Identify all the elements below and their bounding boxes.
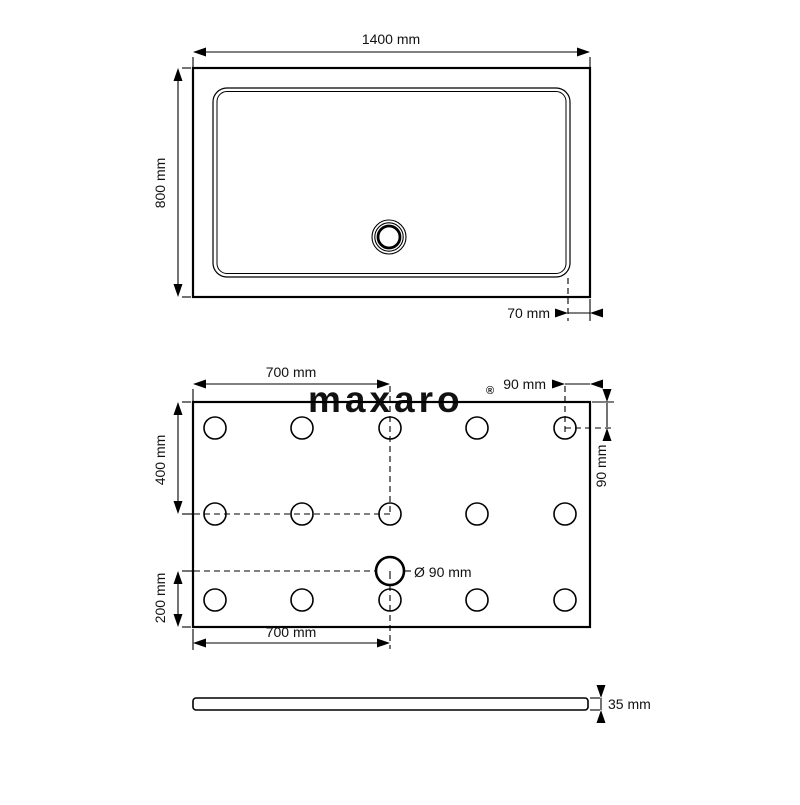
drain-top-view <box>372 220 406 254</box>
arrow-right-icon <box>555 309 568 318</box>
arrow-right-icon <box>552 380 565 389</box>
top-view-height-label: 800 mm <box>152 158 168 209</box>
arrow-down-icon <box>174 284 183 297</box>
arrow-down-icon <box>603 389 612 402</box>
foot-circle <box>466 503 488 525</box>
bottom-view-left-lower-label: 200 mm <box>152 573 168 624</box>
arrow-left-icon <box>590 380 603 389</box>
arrow-down-icon <box>174 501 183 514</box>
side-view-thickness-label: 35 mm <box>608 696 651 712</box>
arrow-up-icon <box>597 710 606 723</box>
watermark-registered-icon: ® <box>486 385 494 397</box>
bottom-view-bottom-span-label: 700 mm <box>266 624 317 640</box>
foot-circle <box>466 589 488 611</box>
top-view-outer-edge <box>193 68 590 297</box>
shower-tray-drawing: maxaro ® <box>0 0 800 800</box>
side-view <box>193 685 606 723</box>
arrow-left-icon <box>590 309 603 318</box>
arrow-down-icon <box>174 614 183 627</box>
arrow-right-icon <box>577 48 590 57</box>
dim-width-1400 <box>193 48 590 68</box>
foot-circle <box>466 417 488 439</box>
top-view-rim-label: 70 mm <box>507 305 550 321</box>
arrow-down-icon <box>597 685 606 698</box>
foot-circle <box>554 503 576 525</box>
arrow-up-icon <box>174 571 183 584</box>
drain-diameter-label: Ø 90 mm <box>414 564 472 580</box>
arrow-up-icon <box>174 68 183 81</box>
arrow-left-icon <box>193 48 206 57</box>
foot-circle <box>291 417 313 439</box>
top-view-width-label: 1400 mm <box>362 31 420 47</box>
dim-rim-70 <box>555 278 603 321</box>
dim-thickness-35 <box>590 685 606 723</box>
dim-height-800 <box>174 68 192 297</box>
foot-circle <box>204 417 226 439</box>
top-view <box>174 48 604 322</box>
foot-circle <box>291 589 313 611</box>
foot-circle <box>204 589 226 611</box>
bottom-view-top-right-label: 90 mm <box>503 376 546 392</box>
top-view-rim-inner-line <box>217 92 566 274</box>
bottom-view-left-upper-label: 400 mm <box>152 435 168 486</box>
dim-left-200 <box>174 571 193 627</box>
bottom-view <box>174 380 615 651</box>
technical-drawing-page: maxaro ® <box>0 0 800 800</box>
arrow-left-icon <box>193 380 206 389</box>
bottom-view-right-label: 90 mm <box>593 445 609 488</box>
arrow-left-icon <box>193 639 206 648</box>
dim-left-400 <box>174 402 193 514</box>
bottom-view-top-span-label: 700 mm <box>266 364 317 380</box>
arrow-up-icon <box>174 402 183 415</box>
dim-right-90 <box>592 389 614 441</box>
foot-circle <box>554 589 576 611</box>
center-lines <box>194 386 612 649</box>
dim-top-right-90 <box>552 380 603 389</box>
arrow-up-icon <box>603 428 612 441</box>
arrow-right-icon <box>377 639 390 648</box>
side-view-profile <box>193 698 588 710</box>
